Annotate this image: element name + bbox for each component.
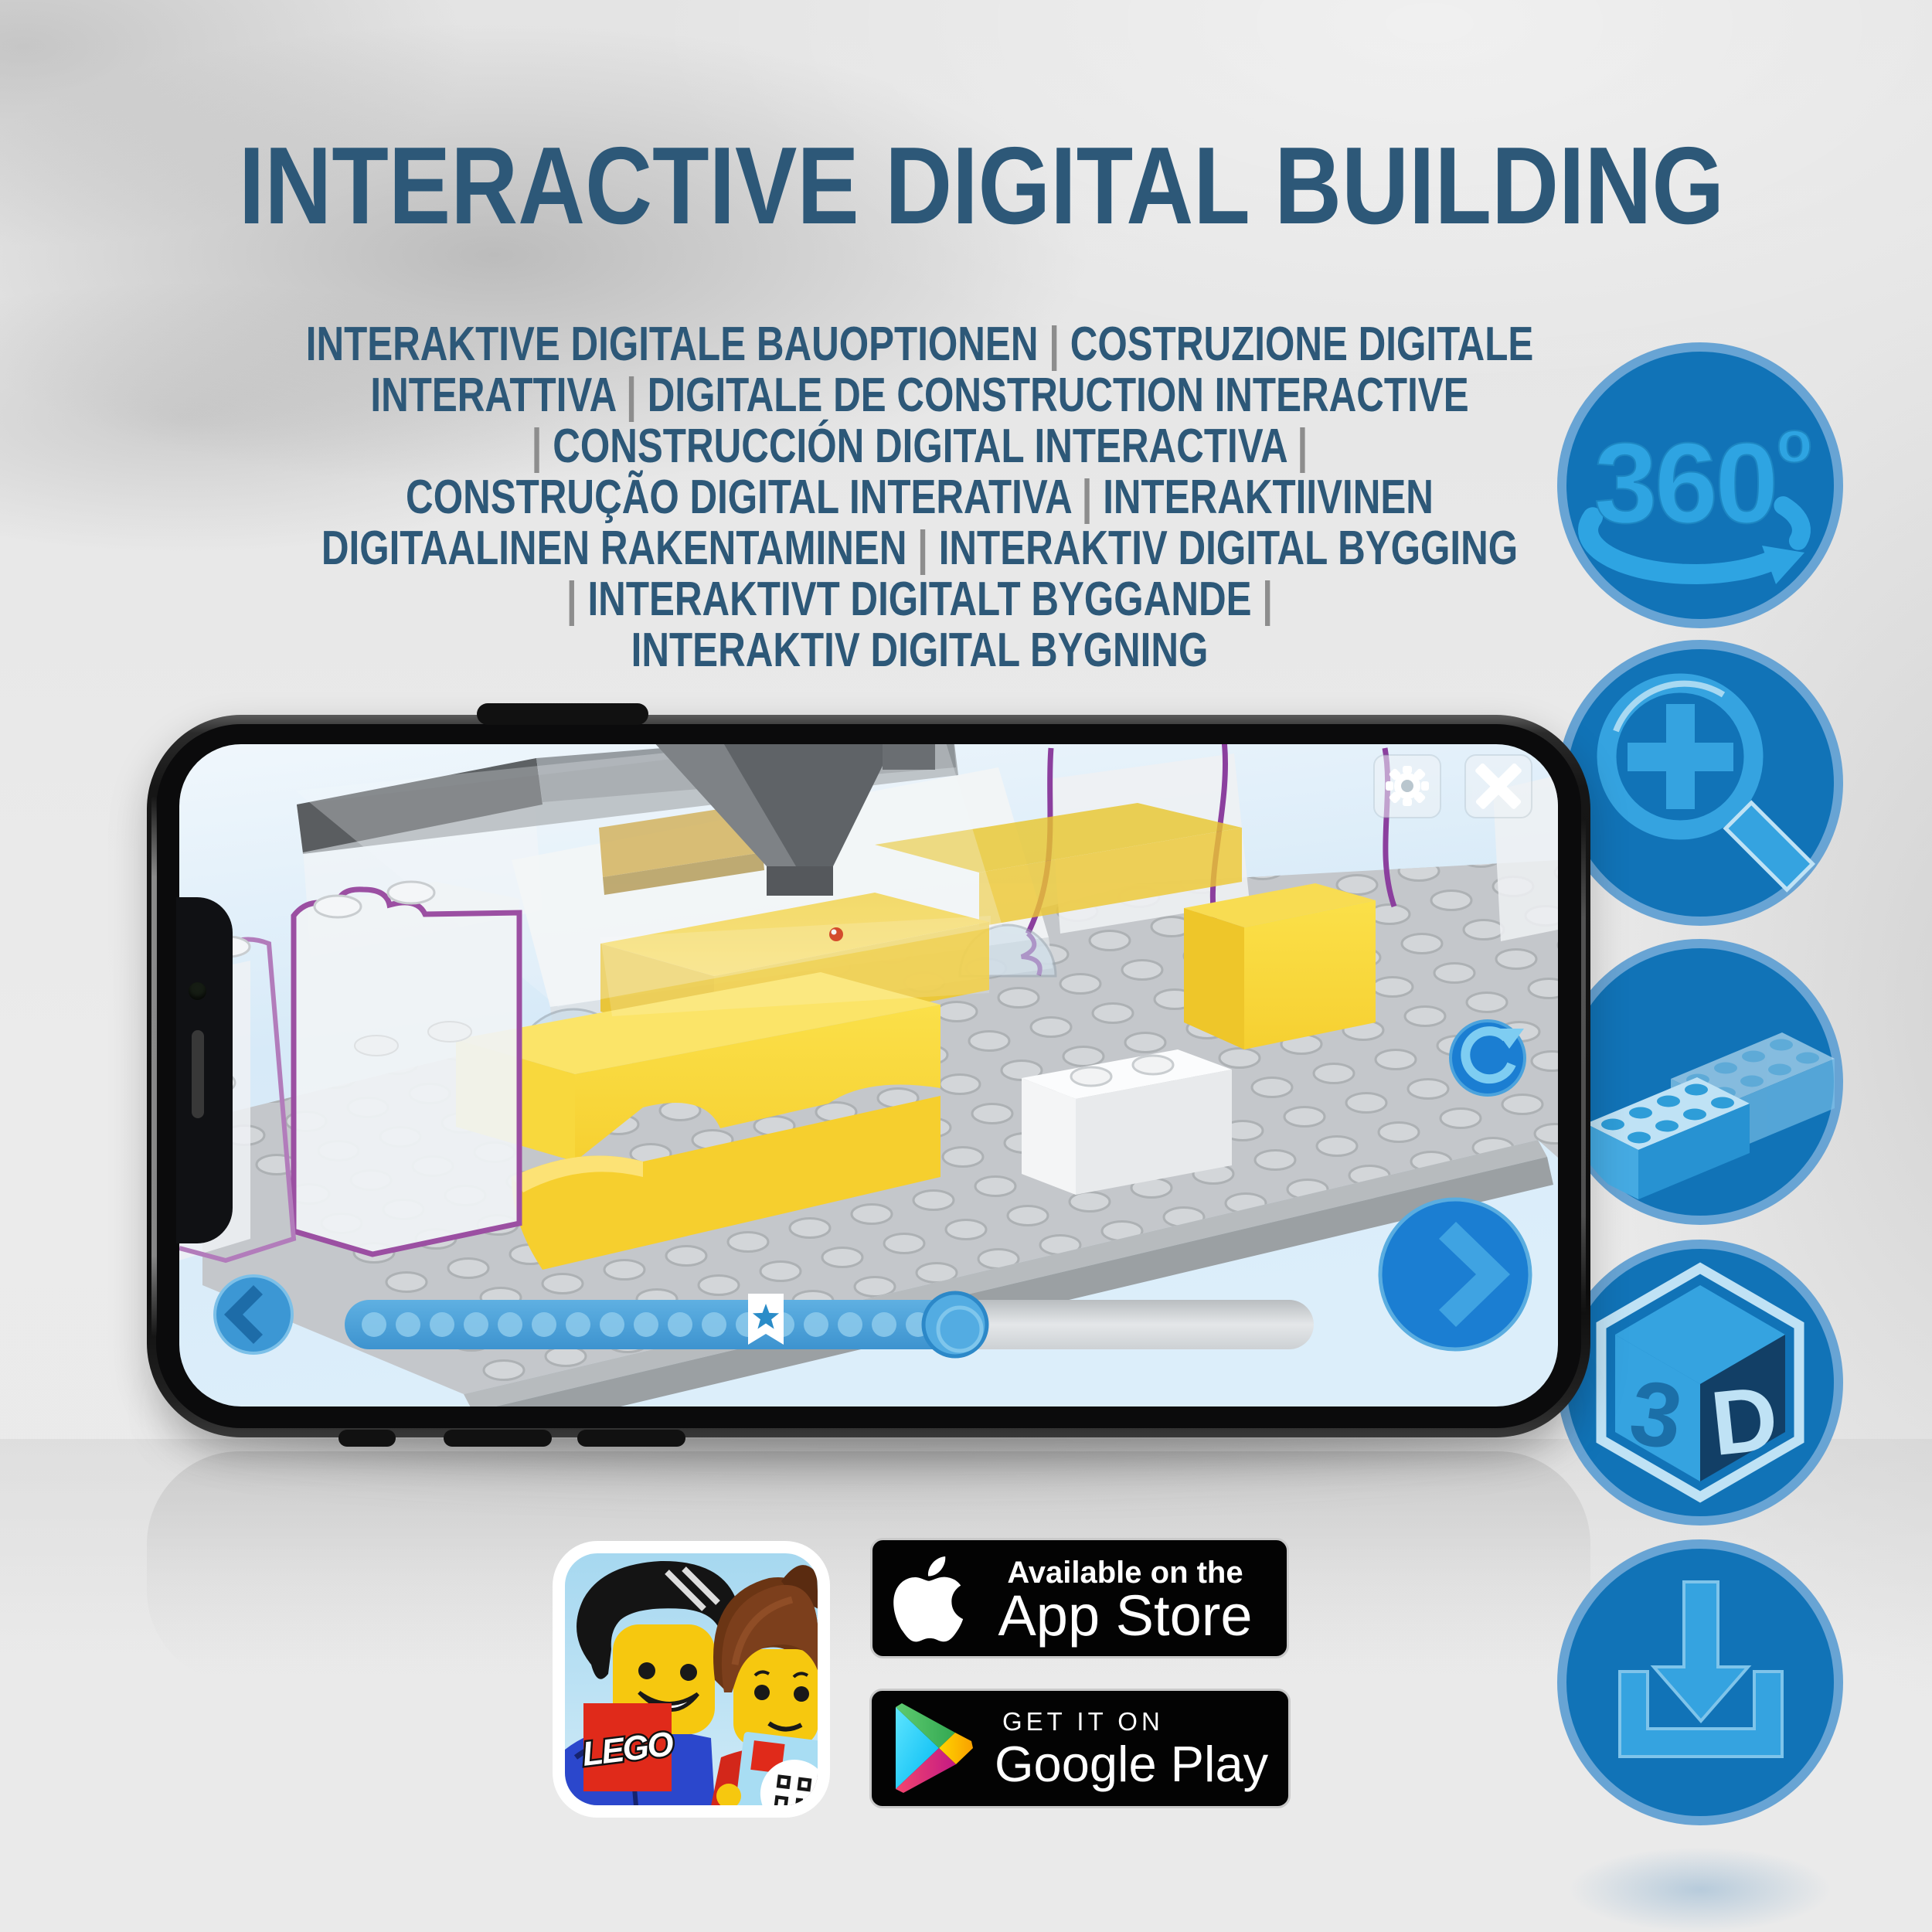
svg-text:App Store: App Store xyxy=(998,1583,1252,1648)
svg-text:D: D xyxy=(1706,1367,1783,1475)
svg-text:GET IT ON: GET IT ON xyxy=(1002,1707,1164,1736)
svg-text:Google Play: Google Play xyxy=(995,1736,1269,1792)
svg-text:360: 360 xyxy=(1594,420,1776,547)
svg-text:o: o xyxy=(1777,410,1812,475)
